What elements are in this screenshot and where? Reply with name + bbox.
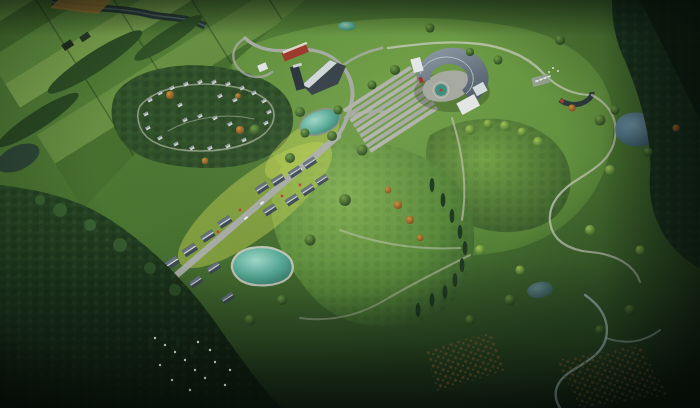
masterplan-rendering [0,0,700,408]
aerial-rendering-canvas [0,0,700,408]
vignette-overlay [0,0,700,408]
